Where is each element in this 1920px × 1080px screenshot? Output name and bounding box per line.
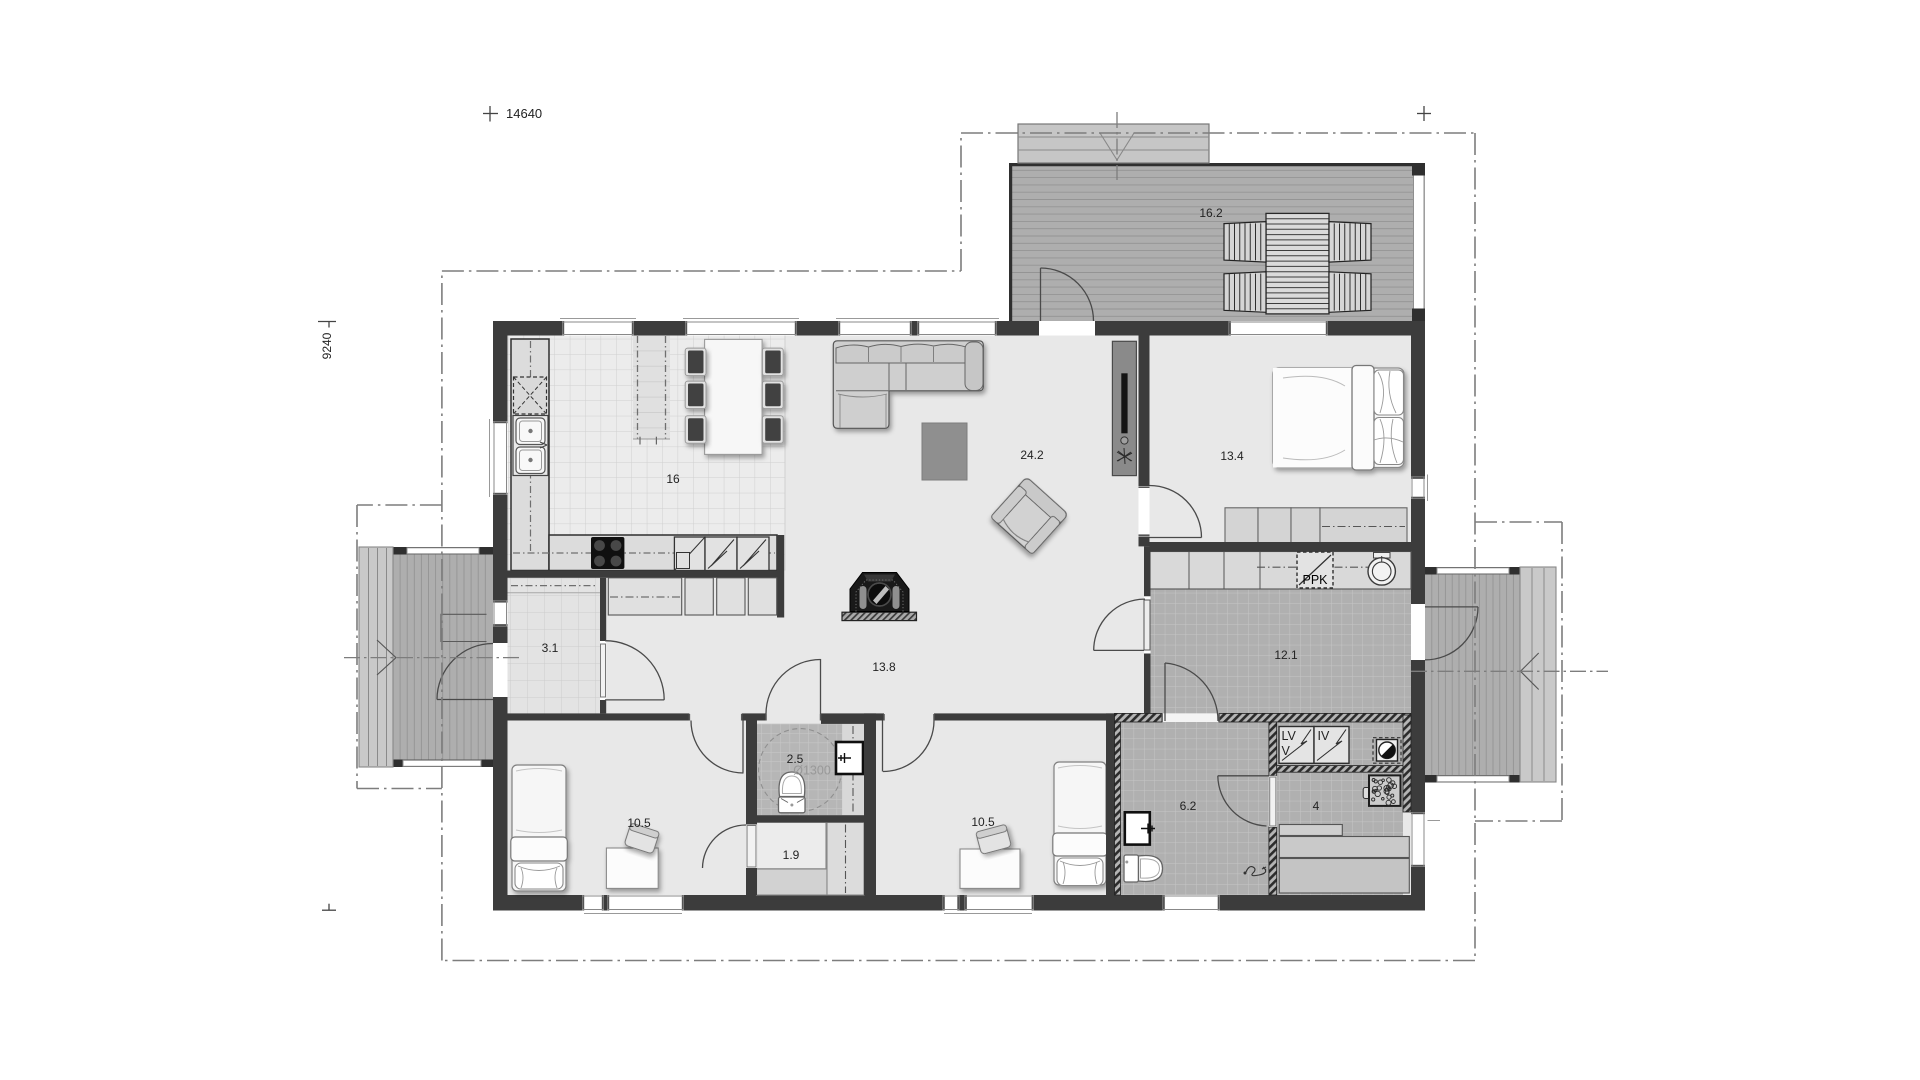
svg-text:10.5: 10.5 bbox=[627, 816, 651, 830]
svg-text:4: 4 bbox=[1313, 799, 1320, 813]
svg-text:V: V bbox=[1282, 744, 1291, 758]
svg-text:PPK: PPK bbox=[1302, 573, 1328, 587]
svg-text:6.2: 6.2 bbox=[1180, 799, 1197, 813]
svg-text:9240: 9240 bbox=[320, 332, 334, 359]
svg-text:13.4: 13.4 bbox=[1220, 449, 1244, 463]
svg-text:3.1: 3.1 bbox=[542, 641, 559, 655]
svg-text:24.2: 24.2 bbox=[1020, 448, 1044, 462]
svg-text:16.2: 16.2 bbox=[1199, 206, 1223, 220]
svg-text:LV: LV bbox=[1282, 729, 1297, 743]
svg-text:Ø1300: Ø1300 bbox=[793, 764, 831, 778]
svg-text:13.8: 13.8 bbox=[872, 660, 896, 674]
svg-text:10.5: 10.5 bbox=[971, 815, 995, 829]
svg-text:12.1: 12.1 bbox=[1274, 648, 1298, 662]
svg-text:1.9: 1.9 bbox=[783, 848, 800, 862]
svg-text:16: 16 bbox=[666, 472, 680, 486]
svg-text:14640: 14640 bbox=[506, 106, 542, 121]
svg-text:IV: IV bbox=[1318, 729, 1330, 743]
